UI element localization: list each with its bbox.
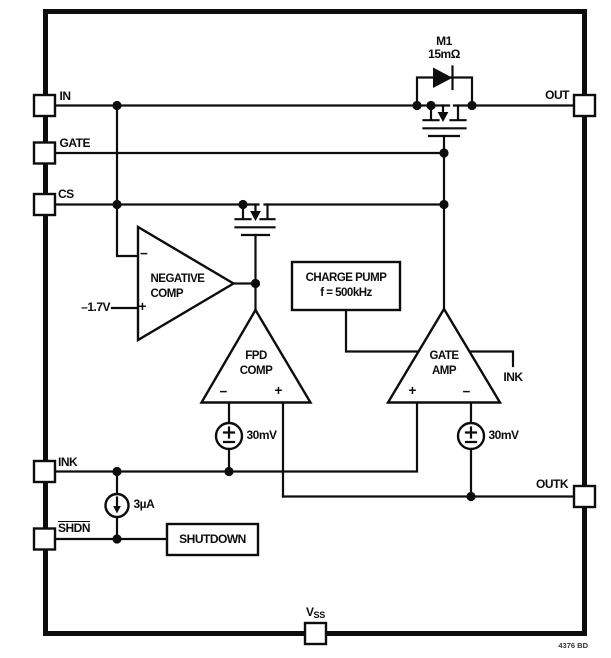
shutdown-block-label: SHUTDOWN <box>168 533 257 546</box>
wire-chargepump-output <box>346 310 420 352</box>
clamp-body-arrow-head <box>250 211 261 221</box>
offset-right-value-label: 30mV <box>489 429 519 442</box>
pin-shdn-label: SHDN <box>58 521 90 535</box>
negative-comp-plus-sign: + <box>139 300 147 314</box>
negative-comp-name-line2: COMP <box>151 288 184 300</box>
pin-cs-square <box>34 194 55 215</box>
pin-vss-square <box>305 623 326 644</box>
wire-sense-vertical <box>117 106 138 257</box>
pin-in-label: IN <box>60 90 71 103</box>
circuit-graphics <box>0 0 611 658</box>
vss-letter: V <box>306 605 314 619</box>
gate-amp-ink-net-label: INK <box>493 371 533 384</box>
offset-left-value-label: 30mV <box>247 429 277 442</box>
fpd-comp-plus-sign: + <box>275 384 283 398</box>
block-diagram: IN GATE CS INK SHDN OUT OUTK VSS M1 15mΩ… <box>0 0 611 658</box>
pin-outk-label: OUTK <box>524 478 568 491</box>
m1-mosfet <box>417 67 472 137</box>
pin-shdn-square <box>34 529 55 550</box>
m1-resistance-label: 15mΩ <box>414 48 474 61</box>
negative-comp-minus-sign: − <box>140 247 148 261</box>
fpd-comp-minus-sign: − <box>220 385 228 399</box>
charge-pump-frequency-label: f = 500kHz <box>293 287 399 299</box>
clamp-mosfet <box>236 205 275 236</box>
gate-amp-minus-sign: − <box>463 385 471 399</box>
pin-in-square <box>34 95 55 116</box>
gate-amp-name-line2: AMP <box>418 365 470 377</box>
pin-vss-label: VSS <box>293 606 338 620</box>
diagram-code-label: 4376 BD <box>520 642 588 650</box>
vss-subscript: SS <box>314 610 325 620</box>
pin-gate-label: GATE <box>60 137 90 150</box>
current-source-symbol <box>106 494 129 517</box>
pin-outk-square <box>574 486 595 507</box>
pin-out-square <box>574 95 595 116</box>
negative-comp-reference-label: –1.7V <box>58 301 110 314</box>
pin-cs-label: CS <box>58 188 74 201</box>
current-source-value-label: 3µA <box>134 498 155 511</box>
pin-gate-square <box>34 143 55 164</box>
wires <box>55 106 574 540</box>
pin-ink-square <box>34 461 55 482</box>
gate-amp-plus-sign: + <box>409 384 417 398</box>
m1-designator-label: M1 <box>414 35 474 48</box>
fpd-comp-name-line2: COMP <box>230 365 282 377</box>
diode-anode-triangle <box>433 68 453 89</box>
offset-source-right-symbol <box>458 423 484 449</box>
offset-source-left-symbol <box>216 423 242 449</box>
pin-out-label: OUT <box>529 89 569 102</box>
pin-ink-label: INK <box>58 456 77 469</box>
negative-comp-name-line1: NEGATIVE <box>151 273 205 285</box>
gate-amp-name-line1: GATE <box>418 350 470 362</box>
charge-pump-name-label: CHARGE PUMP <box>293 272 399 284</box>
shdn-overline-text: SHDN <box>58 521 90 535</box>
fpd-comp-name-line1: FPD <box>230 350 282 362</box>
